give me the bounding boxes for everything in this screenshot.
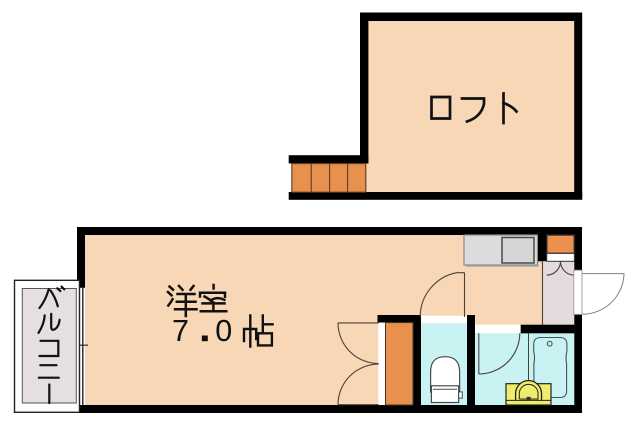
svg-text:0: 0 xyxy=(215,314,232,348)
svg-text:7: 7 xyxy=(172,314,189,348)
